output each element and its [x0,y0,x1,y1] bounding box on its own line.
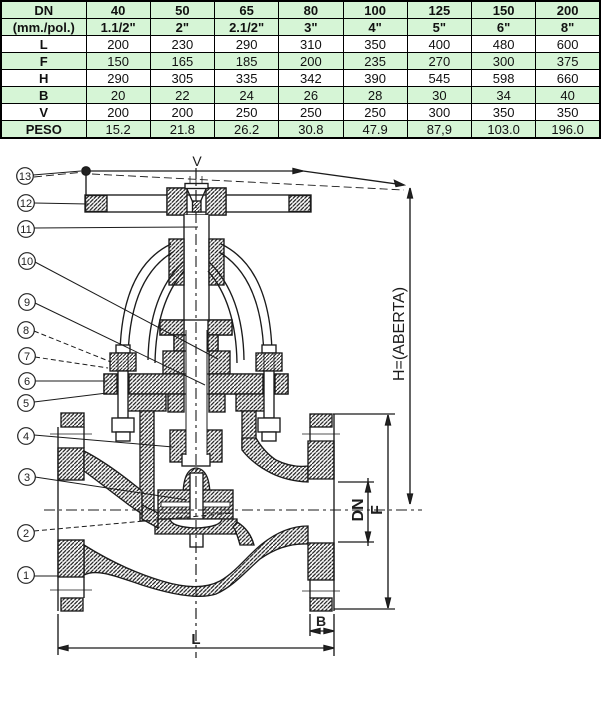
svg-text:6: 6 [24,376,30,388]
svg-text:4: 4 [23,431,29,443]
svg-text:12: 12 [20,198,32,210]
svg-text:2: 2 [23,528,29,540]
svg-text:DN: DN [350,498,367,521]
svg-text:5: 5 [23,398,29,410]
svg-text:8: 8 [23,325,29,337]
svg-text:3: 3 [24,472,30,484]
svg-text:F: F [369,505,386,515]
svg-text:10: 10 [21,256,33,268]
svg-text:11: 11 [20,224,31,236]
svg-text:9: 9 [24,297,30,309]
svg-text:B: B [316,613,326,629]
svg-text:1: 1 [23,570,29,582]
svg-text:7: 7 [24,351,30,363]
svg-text:L: L [191,631,200,648]
svg-text:13: 13 [19,171,31,183]
svg-text:H=(ABERTA): H=(ABERTA) [391,287,408,381]
svg-text:V: V [192,153,202,169]
